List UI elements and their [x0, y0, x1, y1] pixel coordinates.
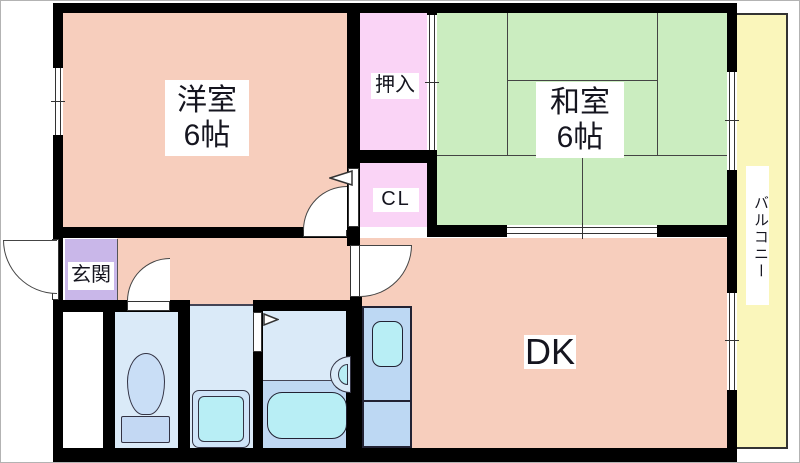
oshiire-name: 押入: [371, 74, 419, 98]
label-western-room: 洋室 6帖: [165, 80, 249, 156]
wall-outer-top: [53, 3, 737, 13]
label-dk: DK: [524, 335, 576, 369]
label-balcony: バルコニー: [746, 166, 769, 305]
toilet-tank: [121, 416, 170, 443]
western-room-size: 6帖: [165, 118, 249, 153]
japanese-room-size: 6帖: [536, 120, 624, 155]
tatami-line: [582, 155, 583, 225]
window-tick: [725, 120, 739, 121]
tatami-line: [507, 80, 657, 81]
window-rail: [729, 293, 730, 390]
balcony-name: バルコニー: [752, 195, 769, 280]
window-japanese-balcony: [727, 72, 737, 170]
window-tick: [582, 223, 583, 239]
entrance-hall-divider: [117, 239, 118, 302]
dk-door-leaf: [350, 245, 360, 297]
cl-name: CL: [373, 188, 419, 212]
window-rail: [734, 293, 735, 390]
wall-outer-bottom: [53, 448, 737, 462]
kitchen-counter-divider: [362, 400, 412, 402]
sliding-opening-japanese-dk: [507, 225, 657, 237]
japanese-room-name: 和室: [536, 85, 624, 120]
bathtub: [267, 392, 347, 439]
window-rail: [729, 72, 730, 170]
kitchen-sink: [372, 321, 403, 367]
window-rail: [734, 72, 735, 170]
western-room-name: 洋室: [165, 83, 249, 118]
toilet-door-leaf: [127, 301, 170, 311]
window-west: [53, 68, 63, 135]
sliding-door-oshiire: [427, 15, 437, 150]
bathroom-door-fold-marker: [263, 313, 279, 326]
toilet-bowl: [127, 353, 165, 415]
laundry-nook-divider: [190, 304, 253, 306]
tatami-line: [657, 13, 658, 155]
label-japanese-room: 和室 6帖: [536, 82, 624, 158]
wall-bathroom-top: [253, 300, 356, 311]
dk-name: DK: [524, 331, 576, 373]
wall-storage-toilet: [103, 312, 115, 448]
room-storage: [65, 312, 103, 448]
window-tick: [425, 82, 439, 83]
bathroom-door: [253, 312, 262, 352]
tatami-line: [507, 13, 508, 155]
window-tick: [51, 101, 65, 102]
wall-toilet-laundry: [178, 300, 190, 448]
floorplan: 洋室 6帖 和室 6帖 押入 CL 玄関 DK バルコニー: [0, 0, 800, 463]
window-tick: [725, 340, 739, 341]
label-entrance: 玄関: [68, 262, 114, 290]
window-dk-balcony: [727, 293, 737, 390]
cl-door-fold-marker: [329, 170, 353, 186]
entrance-name: 玄関: [68, 264, 114, 288]
wall-oshiire-cl: [360, 150, 427, 163]
label-oshiire: 押入: [371, 73, 419, 99]
entrance-door-swing: [3, 240, 57, 294]
washing-machine-drum: [198, 396, 244, 442]
label-cl: CL: [373, 188, 419, 212]
